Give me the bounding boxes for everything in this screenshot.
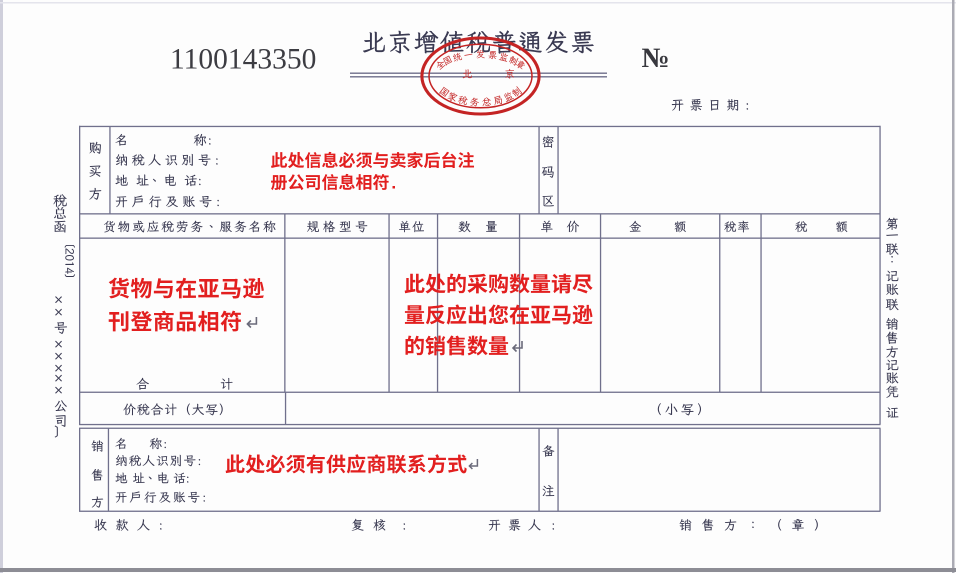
svg-text:1100143350: 1100143350	[170, 44, 316, 76]
svg-text:№: №	[642, 43, 670, 74]
